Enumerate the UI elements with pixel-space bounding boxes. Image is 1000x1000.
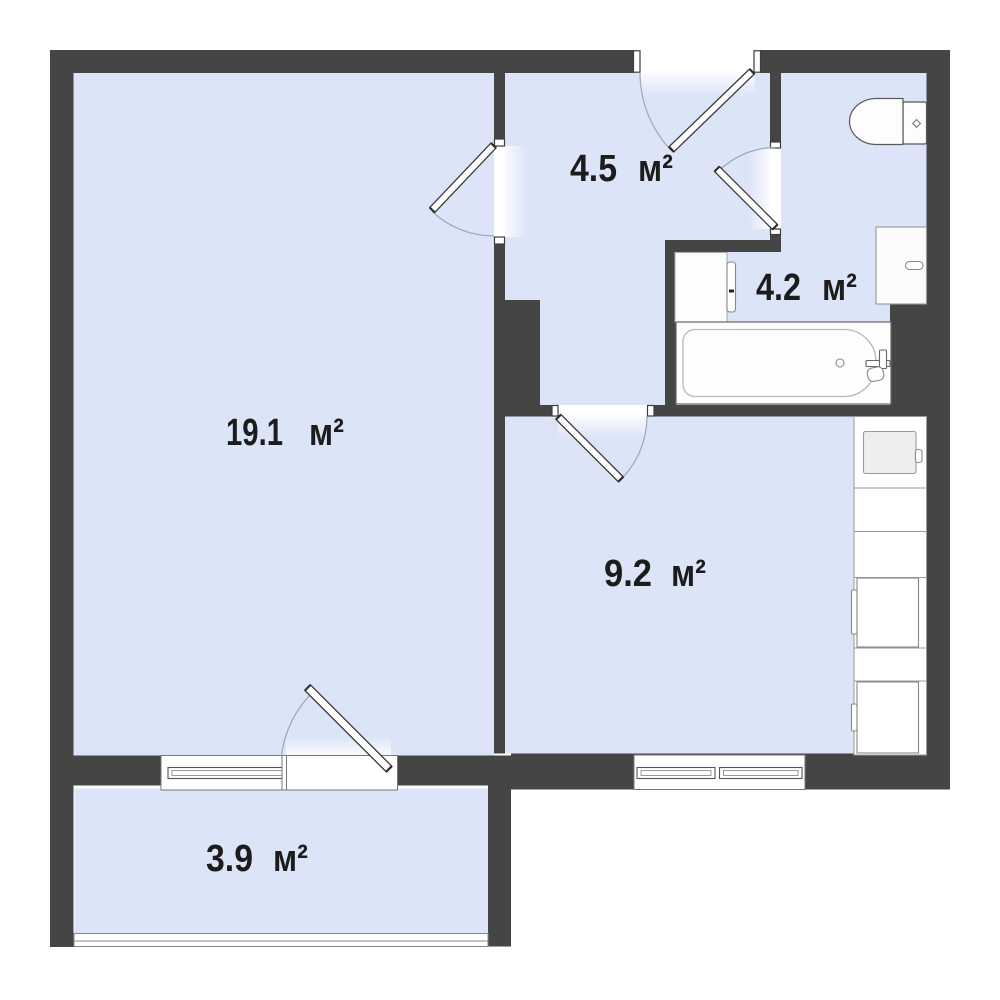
svg-text:м²: м² (638, 148, 673, 190)
svg-text:м²: м² (671, 553, 706, 595)
svg-text:м²: м² (309, 412, 344, 454)
svg-text:4.5: 4.5 (570, 148, 617, 190)
svg-text:9.2: 9.2 (604, 553, 652, 595)
svg-text:19.1: 19.1 (226, 412, 283, 454)
svg-text:м²: м² (273, 838, 308, 880)
svg-text:4.2: 4.2 (756, 267, 801, 309)
svg-text:3.9: 3.9 (206, 838, 253, 880)
svg-text:м²: м² (822, 267, 857, 309)
